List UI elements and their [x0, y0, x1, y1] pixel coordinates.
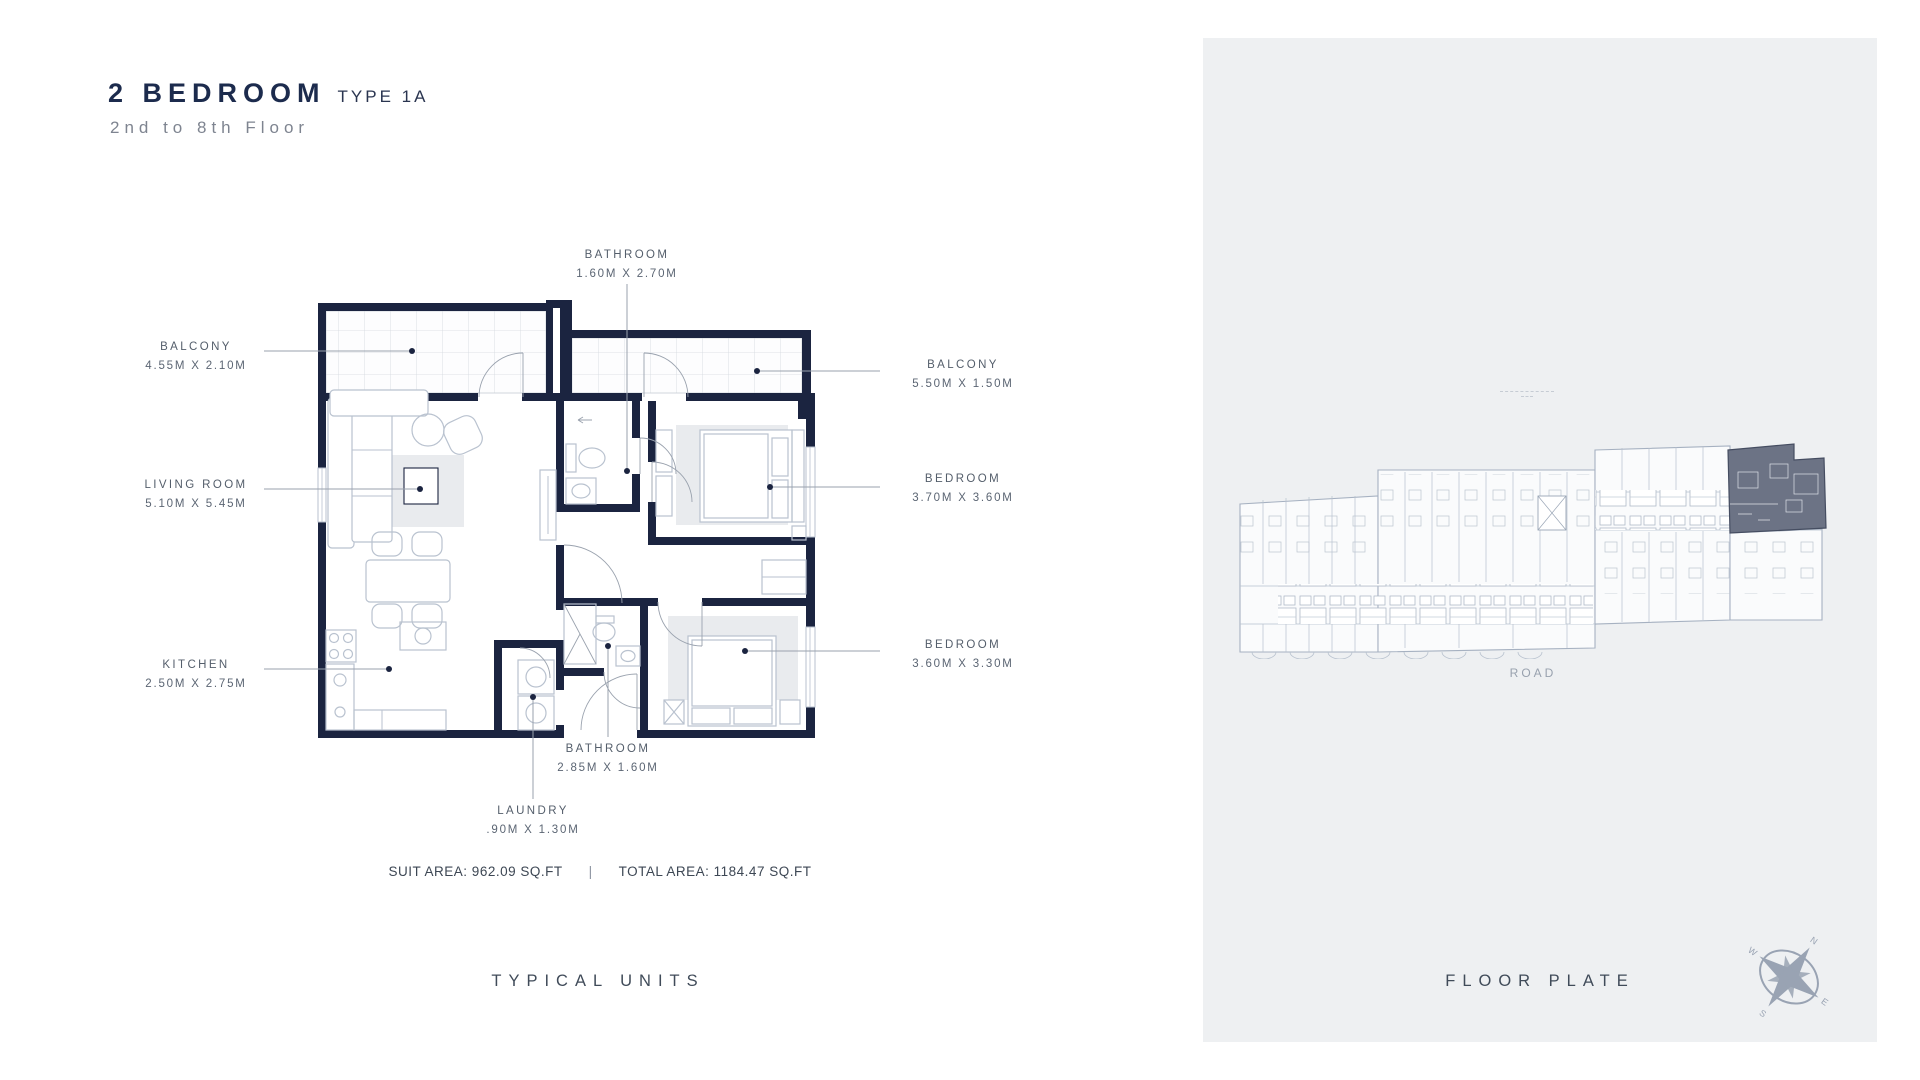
- label-balcony-right: BALCONY 5.50M X 1.50M: [878, 356, 1048, 394]
- floor-plate-drawing: [1238, 434, 1833, 659]
- label-laundry: LAUNDRY .90M X 1.30M: [448, 802, 618, 840]
- plate-dash-mark: [1500, 391, 1554, 392]
- bathroom-bottom-fixtures: [564, 604, 640, 666]
- brochure-page: 2 BEDROOMTYPE 1A 2nd to 8th Floor: [0, 0, 1920, 1080]
- typical-units-caption: TYPICAL UNITS: [248, 972, 948, 991]
- label-bedroom-top: BEDROOM 3.70M X 3.60M: [878, 470, 1048, 508]
- area-separator: |: [589, 864, 593, 879]
- label-kitchen: KITCHEN 2.50M X 2.75M: [111, 656, 281, 694]
- page-title: 2 BEDROOMTYPE 1A: [108, 78, 428, 109]
- stair-core: [1538, 496, 1566, 530]
- label-bedroom-bottom: BEDROOM 3.60M X 3.30M: [878, 636, 1048, 674]
- label-bathroom-top: BATHROOM 1.60M X 2.70M: [542, 246, 712, 284]
- unit-type-variant: TYPE 1A: [338, 87, 429, 106]
- compass-n: N: [1808, 935, 1820, 947]
- total-area: TOTAL AREA: 1184.47 SQ.FT: [619, 864, 812, 879]
- plate-dash-submark: [1521, 396, 1533, 397]
- label-living-room: LIVING ROOM 5.10M X 5.45M: [111, 476, 281, 514]
- kitchen-fixtures: [326, 622, 446, 730]
- compass-s: S: [1757, 1008, 1768, 1020]
- label-balcony-left: BALCONY 4.55M X 2.10M: [111, 338, 281, 376]
- area-summary: SUIT AREA: 962.09 SQ.FT | TOTAL AREA: 11…: [250, 864, 950, 879]
- highlighted-unit: [1728, 444, 1826, 533]
- unit-type-title: 2 BEDROOM: [108, 78, 326, 108]
- compass-icon: N E S W: [1737, 925, 1841, 1029]
- bathroom-top-fixtures: [566, 417, 605, 504]
- floor-range-subtitle: 2nd to 8th Floor: [110, 118, 309, 138]
- road-label: ROAD: [1433, 666, 1633, 680]
- laundry-machines: [518, 660, 554, 730]
- suit-area: SUIT AREA: 962.09 SQ.FT: [389, 864, 563, 879]
- corridor-units-right: [1595, 490, 1730, 530]
- balcony-scallops: [1252, 652, 1542, 659]
- compass-e: E: [1819, 996, 1830, 1008]
- compass-w: W: [1746, 945, 1760, 959]
- corridor-units-left: [1278, 584, 1593, 624]
- label-bathroom-bottom: BATHROOM 2.85M X 1.60M: [523, 740, 693, 778]
